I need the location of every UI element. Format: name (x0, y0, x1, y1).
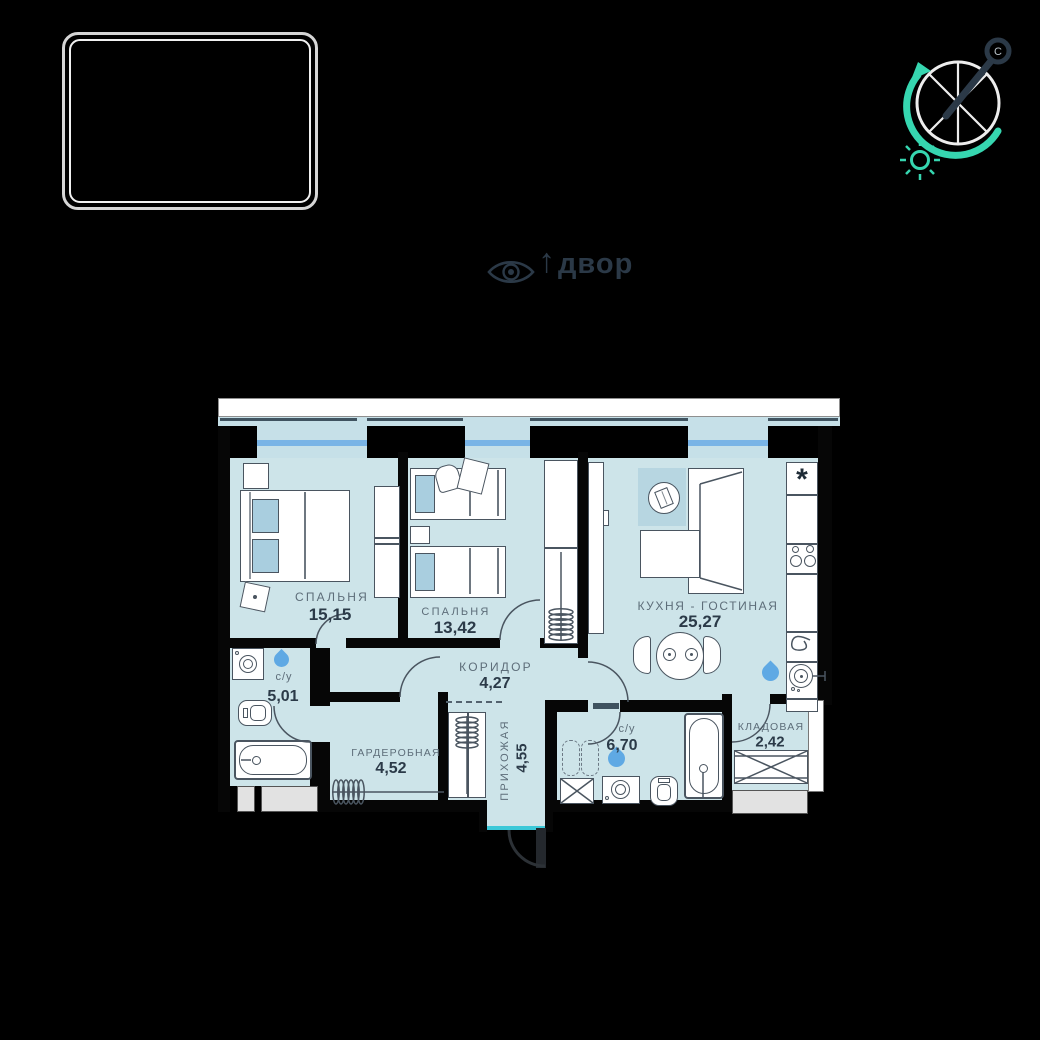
toilet-tank (243, 708, 248, 718)
shaft-box (560, 778, 594, 804)
wall-entrance-side (479, 808, 487, 832)
wall-hallway-bathroom2 (545, 700, 557, 812)
bathtub-drain (699, 764, 708, 773)
lintel (220, 418, 357, 421)
freezer-asterisk-icon: * (786, 462, 818, 492)
pillow (252, 499, 279, 533)
doorway (310, 706, 330, 742)
nightstand (410, 526, 430, 544)
entrance-door-leaf (536, 828, 546, 868)
nightstand-tilted (240, 582, 271, 613)
lintel (530, 418, 688, 421)
bathroom2-door-threshold (593, 703, 619, 709)
sofa-seat (640, 530, 700, 578)
bathtub-drain (252, 756, 261, 765)
wall-bathroom2-top (620, 700, 732, 712)
room-label: КУХНЯ - ГОСТИНАЯ (637, 599, 778, 613)
room-label: ГАРДЕРОБНАЯ (351, 747, 441, 759)
bathtub-inner (239, 745, 307, 775)
room-label: КЛАДОВАЯ (738, 721, 804, 733)
wardrobe-cabinet (544, 460, 578, 644)
nightstand (243, 463, 269, 489)
room-area: 6,70 (606, 737, 637, 755)
wall-bedroom2-bottom (408, 638, 500, 648)
room-label: КОРИДОР (459, 660, 533, 674)
lintel (367, 418, 463, 421)
window-glass-line (688, 440, 768, 446)
room-area: 2,42 (755, 734, 784, 751)
washing-machine-door-inner (615, 784, 626, 795)
wall-bathroom2-top (557, 700, 588, 712)
room-label: с/у (618, 723, 635, 735)
toilet-tank (658, 778, 670, 783)
lintel (768, 418, 838, 421)
room-area: 5,01 (267, 688, 298, 706)
sink-knob (791, 687, 795, 691)
wall-exterior-white (808, 700, 824, 792)
cooktop-burner (792, 546, 799, 553)
washer-knob (605, 796, 609, 800)
wall-wardrobe-top (330, 692, 400, 702)
bathtub-inner (689, 718, 719, 794)
wardrobe-cabinet (374, 486, 400, 598)
kitchen-sink-drain (800, 675, 803, 678)
hallway-closet (448, 712, 486, 798)
room-area: 25,27 (679, 612, 722, 632)
doorway (578, 658, 588, 700)
exterior-box (261, 786, 318, 812)
tv-console-handle (603, 510, 609, 526)
wall-bedroom2-kitchen (578, 452, 588, 658)
room-label: с/у (275, 671, 292, 683)
room-area: 13,42 (434, 618, 477, 638)
wall-entrance-side (545, 808, 553, 832)
plate-dot (668, 653, 671, 656)
room-label: ПРИХОЖАЯ (499, 719, 511, 800)
plate-dot (690, 653, 693, 656)
room-label: СПАЛЬНЯ (421, 606, 490, 618)
cooktop-burner (790, 555, 802, 567)
room-area: 15,15 (309, 605, 352, 625)
room-area: 4,55 (514, 743, 531, 772)
cooktop-burner (804, 555, 816, 567)
cabinet-dashed (562, 740, 580, 776)
exterior-box (732, 790, 808, 814)
room-label: СПАЛЬНЯ (295, 590, 369, 604)
cabinet-dashed (581, 740, 599, 776)
wall-bathroom1-right (310, 648, 330, 706)
cooktop-burner (806, 545, 814, 553)
pillow (415, 553, 435, 591)
wall-bedroom1-bottom (226, 638, 316, 648)
entrance-stub-floor (487, 810, 545, 827)
dining-chair (633, 636, 651, 674)
doorway (732, 694, 770, 704)
doorway (500, 638, 540, 648)
wall-bedroom1-bottom (346, 638, 398, 648)
pillow (415, 475, 435, 513)
room-area: 4,27 (479, 675, 510, 693)
floorplan: * (0, 0, 1040, 1040)
window-glass-line (465, 440, 530, 446)
room-area: 4,52 (375, 760, 406, 778)
wall-outer-right (818, 426, 832, 705)
washer-knob (235, 651, 239, 655)
wall-bottom (330, 800, 448, 812)
storage-shelf (734, 750, 808, 784)
exterior-box (237, 786, 255, 812)
toilet-seat (657, 784, 671, 801)
zone-dashed-line (446, 701, 502, 703)
window-glass-line (257, 440, 367, 446)
toilet-seat (250, 705, 266, 721)
wall-outer-left (218, 426, 230, 812)
floorplan-page: ↑ двор С (0, 0, 1040, 1040)
pillow (252, 539, 279, 573)
doorway (316, 638, 346, 648)
facade-ledge (218, 398, 840, 417)
tv-console (588, 462, 604, 634)
washing-machine-door-inner (243, 659, 253, 669)
sink-knob (797, 689, 800, 692)
